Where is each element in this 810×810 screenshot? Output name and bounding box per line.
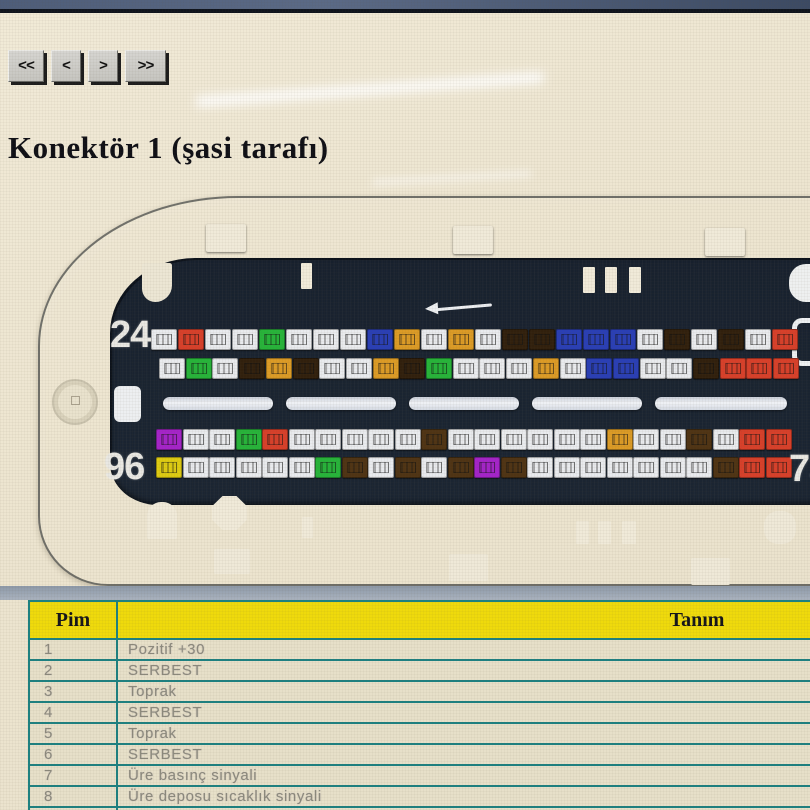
pin	[506, 358, 532, 379]
screen-glare	[195, 72, 545, 107]
pin-number-cell: 8	[29, 786, 117, 807]
mount-tab	[206, 224, 246, 252]
pin	[212, 358, 238, 379]
pin-number-96: 96	[104, 446, 144, 489]
pin	[239, 358, 265, 379]
pin	[293, 358, 319, 379]
nav-first-button[interactable]: <<	[8, 50, 44, 82]
pin	[607, 457, 633, 478]
keying-lug	[764, 511, 796, 544]
pin	[529, 329, 555, 350]
pin	[232, 329, 258, 350]
pin	[580, 429, 606, 450]
pin-description-cell: SERBEST	[117, 660, 810, 681]
pin	[342, 429, 368, 450]
pin	[259, 329, 285, 350]
pin	[236, 457, 262, 478]
pin	[426, 358, 452, 379]
pin	[610, 329, 636, 350]
pin	[205, 329, 231, 350]
connector-slot	[655, 397, 787, 410]
pin	[448, 457, 474, 478]
pin	[399, 358, 425, 379]
pin	[209, 429, 235, 450]
pin-number-cell: 4	[29, 702, 117, 723]
pin	[554, 457, 580, 478]
pin-description-cell: SERBEST	[117, 702, 810, 723]
pin	[527, 429, 553, 450]
keying-lug	[147, 502, 177, 539]
index-rib	[583, 267, 595, 293]
index-rib	[576, 521, 589, 544]
pin	[474, 457, 500, 478]
pin	[313, 329, 339, 350]
pin	[773, 358, 799, 379]
pin	[691, 329, 717, 350]
pin	[156, 457, 182, 478]
pin	[580, 457, 606, 478]
pin-description-cell: Pozitif +30	[117, 639, 810, 660]
pin	[421, 429, 447, 450]
pin	[262, 457, 288, 478]
pin	[367, 329, 393, 350]
table-row: 7Üre basınç sinyali	[29, 765, 810, 786]
rim-tab	[691, 558, 730, 585]
table-row: 5Toprak	[29, 723, 810, 744]
pin	[395, 429, 421, 450]
connector-slot	[532, 397, 642, 410]
pin	[340, 329, 366, 350]
pin	[633, 457, 659, 478]
pin	[640, 358, 666, 379]
mount-hole	[52, 379, 98, 425]
pin	[342, 457, 368, 478]
pin	[395, 457, 421, 478]
pin	[159, 358, 185, 379]
mount-tab	[705, 228, 745, 256]
pin-number-73: 73	[789, 448, 810, 491]
table-row: 1Pozitif +30	[29, 639, 810, 660]
pin	[346, 358, 372, 379]
pin	[368, 457, 394, 478]
pin	[475, 329, 501, 350]
pin	[693, 358, 719, 379]
pin-number-cell: 6	[29, 744, 117, 765]
pin	[686, 429, 712, 450]
pin	[713, 429, 739, 450]
pin	[746, 358, 772, 379]
pin	[178, 329, 204, 350]
nav-next-button[interactable]: >	[88, 50, 118, 82]
pin	[183, 429, 209, 450]
connector-slot	[286, 397, 396, 410]
nav-prev-button[interactable]: <	[51, 50, 81, 82]
pin	[607, 429, 633, 450]
pin-description-cell: Üre deposu sıcaklık sinyali	[117, 786, 810, 807]
index-rib	[629, 267, 641, 293]
pin	[186, 358, 212, 379]
pin	[713, 457, 739, 478]
pin-number-24: 24	[110, 314, 150, 357]
rim-tab	[449, 554, 488, 581]
screen: << < > >> Konektör 1 (şasi tarafı) 24 96…	[0, 0, 810, 810]
connector-slot	[163, 397, 273, 410]
pin	[660, 457, 686, 478]
pin	[560, 358, 586, 379]
monitor-top-strip	[0, 0, 810, 9]
pin	[479, 358, 505, 379]
pin	[718, 329, 744, 350]
mount-tab	[453, 226, 493, 254]
keying-lug	[142, 263, 172, 302]
pin	[394, 329, 420, 350]
pin	[289, 457, 315, 478]
pin	[319, 358, 345, 379]
pin	[421, 329, 447, 350]
navigation-toolbar: << < > >>	[8, 50, 166, 82]
pin	[151, 329, 177, 350]
pin-number-cell: 3	[29, 681, 117, 702]
page-title: Konektör 1 (şasi tarafı)	[8, 130, 329, 166]
pin	[583, 329, 609, 350]
pin	[474, 429, 500, 450]
pin	[289, 429, 315, 450]
table-row: 6SERBEST	[29, 744, 810, 765]
pin	[373, 358, 399, 379]
pin	[766, 429, 792, 450]
monitor-top-strip-line	[0, 9, 810, 13]
pin	[209, 457, 235, 478]
pin	[286, 329, 312, 350]
diagram-bottom-strip	[0, 586, 810, 600]
pin	[586, 358, 612, 379]
pin	[527, 457, 553, 478]
pin-description-cell: Toprak	[117, 723, 810, 744]
table-row: 2SERBEST	[29, 660, 810, 681]
pin	[637, 329, 663, 350]
pin	[421, 457, 447, 478]
pin	[613, 358, 639, 379]
nav-last-button[interactable]: >>	[125, 50, 166, 82]
pin-column-header: Pim	[29, 601, 117, 639]
pin	[236, 429, 262, 450]
pin	[554, 429, 580, 450]
pin	[720, 358, 746, 379]
pin-number-cell: 2	[29, 660, 117, 681]
rim-tab	[214, 549, 250, 574]
pin	[501, 457, 527, 478]
pin	[556, 329, 582, 350]
pin	[686, 457, 712, 478]
pin-description-cell: Toprak	[117, 681, 810, 702]
pin	[533, 358, 559, 379]
pin	[315, 457, 341, 478]
index-rib	[598, 521, 611, 544]
pin	[368, 429, 394, 450]
pin-number-cell: 1	[29, 639, 117, 660]
index-rib	[302, 517, 313, 538]
index-rib	[605, 267, 617, 293]
pin	[502, 329, 528, 350]
pin-description-cell: SERBEST	[117, 744, 810, 765]
table-row: 3Toprak	[29, 681, 810, 702]
pin	[664, 329, 690, 350]
pinout-table: Pim Tanım 1Pozitif +302SERBEST3Toprak4SE…	[28, 600, 810, 810]
pin	[666, 358, 692, 379]
index-rib	[622, 521, 636, 544]
pin-number-cell: 7	[29, 765, 117, 786]
pin	[448, 429, 474, 450]
index-rib	[301, 263, 312, 289]
pin	[448, 329, 474, 350]
pin	[745, 329, 771, 350]
pin	[633, 429, 659, 450]
pin	[183, 457, 209, 478]
description-column-header: Tanım	[117, 601, 810, 639]
pin	[156, 429, 182, 450]
pin-description-cell: Üre basınç sinyali	[117, 765, 810, 786]
connector-slot	[409, 397, 519, 410]
pin	[739, 429, 765, 450]
table-header-row: Pim Tanım	[29, 601, 810, 639]
pin	[660, 429, 686, 450]
pin	[501, 429, 527, 450]
pin	[262, 429, 288, 450]
pin	[453, 358, 479, 379]
pin	[315, 429, 341, 450]
pin	[739, 457, 765, 478]
pin	[266, 358, 292, 379]
table-row: 4SERBEST	[29, 702, 810, 723]
table-row: 8Üre deposu sıcaklık sinyali	[29, 786, 810, 807]
pin	[772, 329, 798, 350]
keying-lug	[114, 386, 141, 422]
screen-glare	[372, 171, 532, 185]
pin-number-cell: 5	[29, 723, 117, 744]
